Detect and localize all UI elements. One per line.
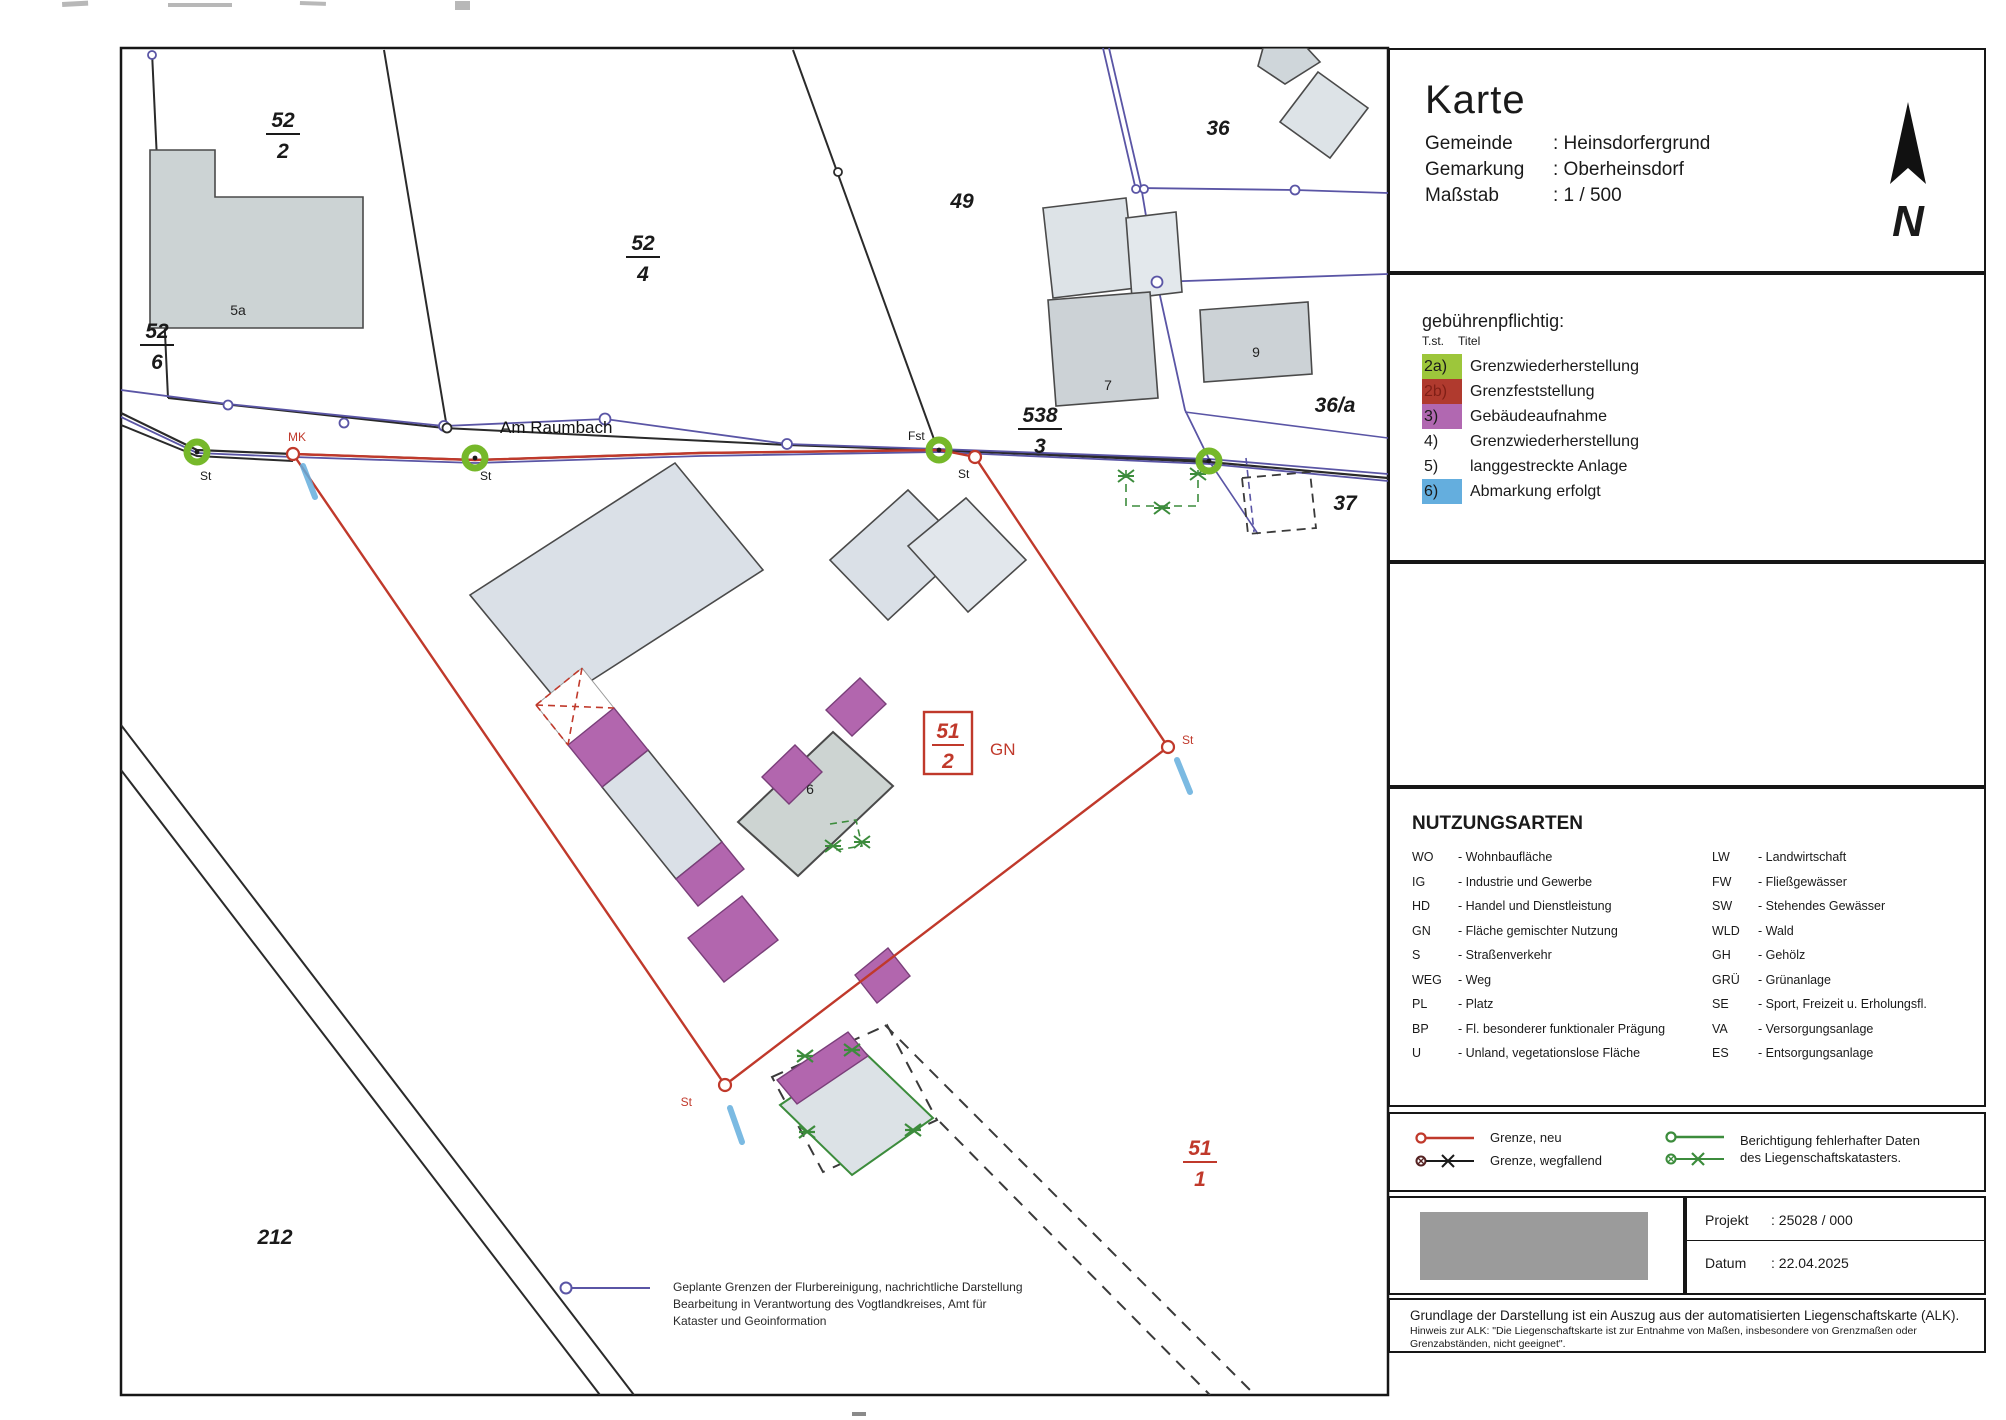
- building-label-6: 6: [806, 781, 814, 797]
- correction-removed-symbol-icon: [1664, 1152, 1728, 1166]
- redacted-stamp: [1420, 1212, 1648, 1280]
- legend-grenze-neu: Grenze, neu: [1414, 1130, 1664, 1145]
- empty-block: [1388, 562, 1986, 787]
- boundary-legend-block: Grenze, neu Grenze, wegfallend: [1388, 1112, 1986, 1192]
- building-label-9: 9: [1252, 344, 1260, 360]
- svg-text:51: 51: [1188, 1137, 1211, 1160]
- parcel-label-37: 37: [1333, 492, 1358, 515]
- point-label-fst: Fst: [908, 429, 925, 443]
- svg-text:1: 1: [1194, 1168, 1206, 1191]
- svg-text:52: 52: [631, 232, 655, 255]
- fee-item: 2a) Grenzwiederherstellung: [1422, 354, 1984, 379]
- building-label-7: 7: [1104, 377, 1112, 393]
- nutzungsarten-heading: NUTZUNGSARTEN: [1412, 813, 1984, 835]
- date-row: Datum : 22.04.2025: [1687, 1241, 1984, 1283]
- point-label-st: St: [1182, 733, 1194, 747]
- svg-text:52: 52: [145, 320, 169, 343]
- nutzungsarten-left-column: WO- Wohnbaufläche IG- Industrie und Gewe…: [1412, 845, 1712, 1066]
- svg-text:2: 2: [276, 140, 289, 163]
- building-label-5a: 5a: [230, 302, 246, 318]
- svg-text:4: 4: [636, 263, 649, 286]
- svg-text:52: 52: [271, 109, 295, 132]
- footer-main-text: Grundlage der Darstellung ist ein Auszug…: [1410, 1308, 1970, 1323]
- point-label-mk: MK: [288, 430, 306, 444]
- parcel-label-49: 49: [949, 190, 974, 213]
- parcel-label-212: 212: [256, 1226, 292, 1249]
- point-label-st: St: [480, 469, 492, 483]
- svg-text:3: 3: [1034, 435, 1046, 458]
- nutzungsarten-block: NUTZUNGSARTEN WO- Wohnbaufläche IG- Indu…: [1388, 787, 1986, 1107]
- nutzungsarten-right-column: LW- Landwirtschaft FW- Fließgewässer SW-…: [1712, 845, 1927, 1066]
- svg-text:6: 6: [151, 351, 163, 374]
- project-row: Projekt : 25028 / 000: [1687, 1198, 1984, 1240]
- fee-legend-columns: T.st.Titel: [1422, 334, 1984, 348]
- parcel-label-36a: 36/a: [1315, 394, 1356, 417]
- stamp-block: [1388, 1196, 1685, 1295]
- correction-line-symbol-icon: [1664, 1130, 1728, 1144]
- fee-item: 3) Gebäudeaufnahme: [1422, 404, 1984, 429]
- legend-grenze-wegfallend: Grenze, wegfallend: [1414, 1153, 1664, 1168]
- fee-item: 4) Grenzwiederherstellung: [1422, 429, 1984, 454]
- point-label-st: St: [958, 467, 970, 481]
- boundary-new-symbol-icon: [1414, 1131, 1478, 1145]
- street-name-label: Am Raumbach: [500, 418, 612, 437]
- usage-label-gn: GN: [990, 740, 1016, 759]
- boundary-removed-symbol-icon: [1414, 1154, 1478, 1168]
- north-arrow-icon: N: [1880, 98, 1936, 248]
- annotation-line: Geplante Grenzen der Flurbereinigung, na…: [673, 1280, 1023, 1294]
- point-label-st: St: [681, 1095, 693, 1109]
- footer-note-block: Grundlage der Darstellung ist ein Auszug…: [1388, 1298, 1986, 1353]
- project-block: Projekt : 25028 / 000 Datum : 22.04.2025: [1685, 1196, 1986, 1295]
- legend-berichtigung: Berichtigung fehlerhafter Daten des Lieg…: [1664, 1130, 1920, 1168]
- svg-text:51: 51: [936, 720, 959, 743]
- annotation-line: Bearbeitung in Verantwortung des Vogtlan…: [673, 1297, 987, 1311]
- svg-text:2: 2: [941, 750, 954, 773]
- point-label-st: St: [200, 469, 212, 483]
- title-block: Karte Gemeinde : Heinsdorfergrund Gemark…: [1388, 48, 1986, 273]
- fee-item: 2b) Grenzfeststellung: [1422, 379, 1984, 404]
- footer-hint-text: Hinweis zur ALK: "Die Liegenschaftskarte…: [1410, 1325, 1970, 1351]
- annotation-line: Kataster und Geoinformation: [673, 1314, 826, 1328]
- fee-item: 5) langgestreckte Anlage: [1422, 454, 1984, 479]
- building-7: [1048, 292, 1158, 406]
- fee-item: 6) Abmarkung erfolgt: [1422, 479, 1984, 504]
- parcel-label-36: 36: [1206, 117, 1230, 140]
- cadastral-map-sheet: 52 2 52 4 52 6 538 3 51 2 51 1: [0, 0, 2006, 1420]
- svg-text:N: N: [1892, 197, 1925, 246]
- svg-text:538: 538: [1022, 404, 1057, 427]
- fee-legend-heading: gebührenpflichtig:: [1422, 311, 1984, 332]
- building-9: [1200, 302, 1312, 382]
- fee-legend-block: gebührenpflichtig: T.st.Titel 2a) Grenzw…: [1388, 273, 1986, 562]
